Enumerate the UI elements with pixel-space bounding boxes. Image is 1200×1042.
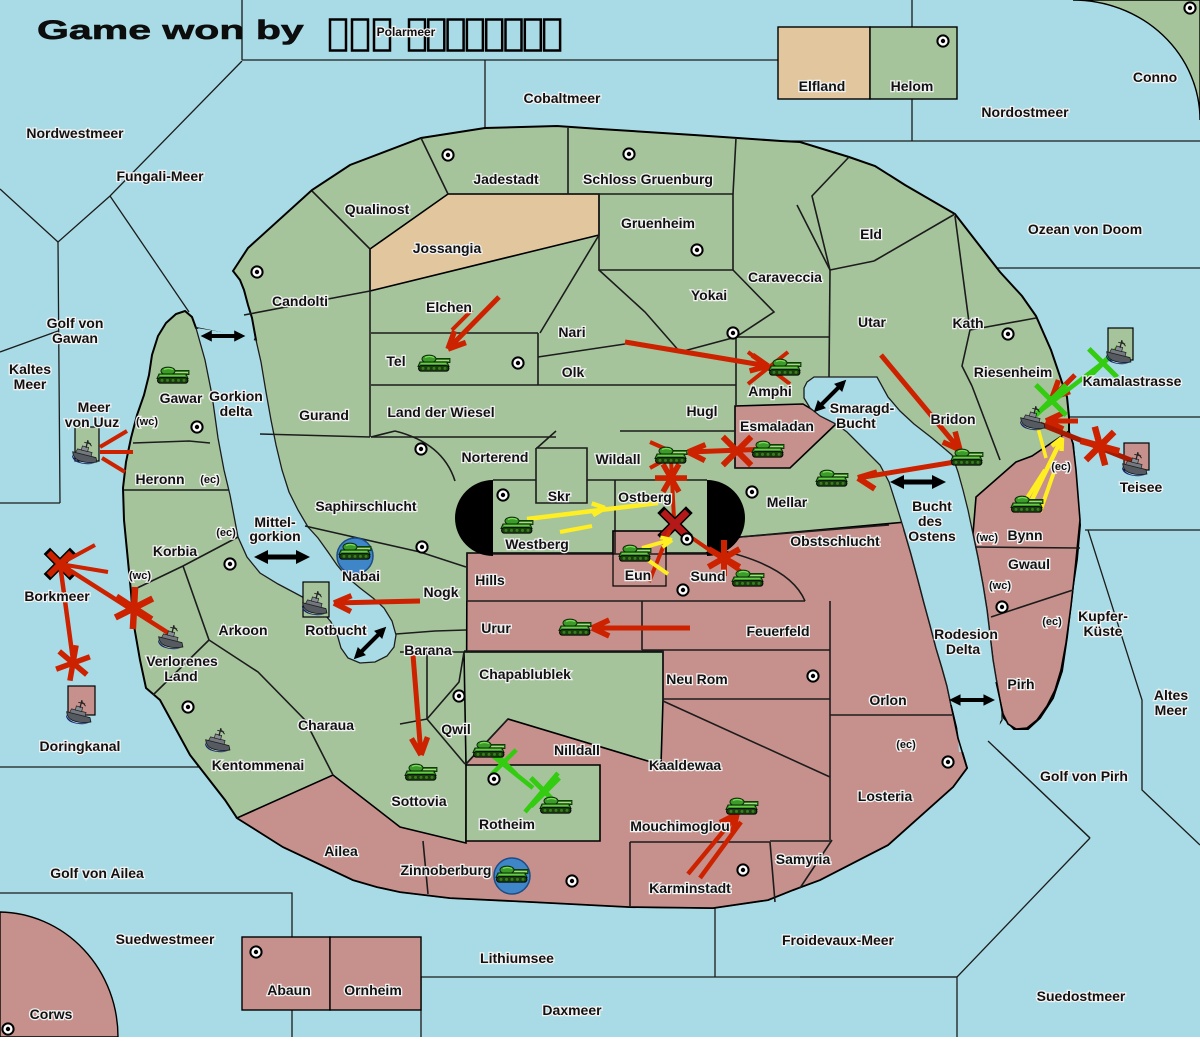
svg-text:Eld: Eld — [860, 226, 882, 242]
svg-text:Feuerfeld: Feuerfeld — [746, 623, 809, 639]
svg-text:Kupfer-: Kupfer- — [1078, 608, 1128, 624]
svg-text:Gruenheim: Gruenheim — [621, 215, 695, 231]
svg-text:Heronn: Heronn — [136, 471, 185, 487]
svg-text:Abaun: Abaun — [267, 982, 311, 998]
svg-text:Barana: Barana — [404, 642, 452, 658]
svg-text:Suedostmeer: Suedostmeer — [1037, 988, 1126, 1004]
svg-text:Rodesion: Rodesion — [934, 626, 998, 642]
svg-text:Nabai: Nabai — [342, 568, 380, 584]
svg-text:Nari: Nari — [558, 324, 585, 340]
svg-text:Orlon: Orlon — [869, 692, 906, 708]
svg-text:Nordwestmeer: Nordwestmeer — [26, 125, 124, 141]
svg-text:Wildall: Wildall — [596, 451, 641, 467]
svg-text:Meer: Meer — [1155, 702, 1188, 718]
svg-text:Borkmeer: Borkmeer — [24, 588, 90, 604]
svg-text:Nogk: Nogk — [424, 584, 459, 600]
svg-text:Helom: Helom — [891, 78, 934, 94]
svg-text:Westberg: Westberg — [505, 536, 569, 552]
svg-text:Yokai: Yokai — [691, 287, 727, 303]
svg-text:Corws: Corws — [30, 1006, 73, 1022]
svg-text:Qwil: Qwil — [441, 721, 471, 737]
svg-text:(wc): (wc) — [989, 580, 1011, 592]
svg-text:Mellar: Mellar — [767, 494, 808, 510]
svg-text:Charaua: Charaua — [298, 717, 354, 733]
svg-text:Jadestadt: Jadestadt — [473, 171, 539, 187]
svg-text:Zinnoberburg: Zinnoberburg — [401, 862, 492, 878]
svg-text:Riesenheim: Riesenheim — [974, 364, 1053, 380]
svg-text:Eun: Eun — [625, 567, 651, 583]
svg-text:Verlorenes: Verlorenes — [146, 653, 218, 669]
svg-text:Candolti: Candolti — [272, 293, 328, 309]
svg-text:Game won by: Game won by — [37, 16, 304, 46]
svg-text:Suedwestmeer: Suedwestmeer — [116, 931, 215, 947]
svg-text:Bynn: Bynn — [1008, 527, 1043, 543]
svg-text:Delta: Delta — [946, 641, 980, 657]
svg-text:Rotheim: Rotheim — [479, 816, 535, 832]
svg-text:Losteria: Losteria — [858, 788, 913, 804]
svg-text:Chapablublek: Chapablublek — [479, 666, 571, 682]
svg-text:Elfland: Elfland — [799, 78, 846, 94]
svg-text:(wc): (wc) — [136, 416, 158, 428]
svg-text:Bucht: Bucht — [836, 415, 876, 431]
svg-text:Kaltes: Kaltes — [9, 361, 51, 377]
svg-text:Norterend: Norterend — [462, 449, 529, 465]
svg-text:Gawan: Gawan — [52, 330, 98, 346]
svg-text:Gwaul: Gwaul — [1008, 556, 1050, 572]
svg-text:Sottovia: Sottovia — [391, 793, 446, 809]
svg-text:Neu Rom: Neu Rom — [666, 671, 727, 687]
svg-text:Elchen: Elchen — [426, 299, 472, 315]
svg-text:Nordostmeer: Nordostmeer — [981, 104, 1069, 120]
svg-text:Bucht: Bucht — [912, 498, 952, 514]
svg-text:Altes: Altes — [1154, 687, 1188, 703]
svg-text:Meer: Meer — [14, 376, 47, 392]
svg-text:von Uuz: von Uuz — [65, 414, 119, 430]
svg-text:Ozean von Doom: Ozean von Doom — [1028, 221, 1142, 237]
svg-text:Urur: Urur — [481, 620, 511, 636]
svg-text:Amphi: Amphi — [748, 383, 792, 399]
svg-text:Gorkion: Gorkion — [209, 388, 263, 404]
svg-text:Polarmeer: Polarmeer — [377, 25, 436, 39]
svg-text:des: des — [918, 513, 942, 529]
svg-text:Kamalastrasse: Kamalastrasse — [1083, 373, 1182, 389]
svg-text:Hills: Hills — [475, 572, 505, 588]
svg-text:Tel: Tel — [386, 353, 405, 369]
svg-text:Golf von: Golf von — [47, 315, 104, 331]
svg-text:Sund: Sund — [691, 568, 726, 584]
svg-text:Caraveccia: Caraveccia — [748, 269, 822, 285]
svg-text:Cobaltmeer: Cobaltmeer — [523, 90, 601, 106]
svg-text:Land der Wiesel: Land der Wiesel — [387, 404, 494, 420]
svg-text:Küste: Küste — [1084, 623, 1123, 639]
svg-text:Teisee: Teisee — [1120, 479, 1163, 495]
svg-text:Golf von Pirh: Golf von Pirh — [1040, 768, 1128, 784]
svg-text:Saphirschlucht: Saphirschlucht — [315, 498, 416, 514]
svg-text:Olk: Olk — [562, 364, 585, 380]
svg-text:Esmaladan: Esmaladan — [740, 418, 814, 434]
svg-text:Smaragd-: Smaragd- — [830, 400, 895, 416]
svg-text:Daxmeer: Daxmeer — [542, 1002, 602, 1018]
svg-text:Obstschlucht: Obstschlucht — [790, 533, 880, 549]
svg-text:Meer: Meer — [78, 399, 111, 415]
svg-text:Karminstadt: Karminstadt — [649, 880, 731, 896]
svg-text:Skr: Skr — [548, 488, 571, 504]
svg-text:Ailea: Ailea — [324, 843, 358, 859]
svg-text:Conno: Conno — [1133, 69, 1177, 85]
svg-text:Lithiumsee: Lithiumsee — [480, 950, 554, 966]
svg-text:Arkoon: Arkoon — [219, 622, 268, 638]
svg-text:Hugl: Hugl — [686, 403, 717, 419]
svg-text:(ec): (ec) — [200, 474, 220, 486]
svg-text:Gurand: Gurand — [299, 407, 349, 423]
svg-text:Land: Land — [164, 668, 197, 684]
svg-text:Ostberg: Ostberg — [618, 489, 672, 505]
svg-text:Kaaldewaa: Kaaldewaa — [649, 757, 722, 773]
svg-text:Korbia: Korbia — [153, 543, 198, 559]
svg-text:Kentommenai: Kentommenai — [212, 757, 305, 773]
svg-text:Pirh: Pirh — [1007, 676, 1034, 692]
svg-text:Rotbucht: Rotbucht — [305, 622, 367, 638]
svg-text:Fungali-Meer: Fungali-Meer — [116, 168, 204, 184]
svg-text:Jossangia: Jossangia — [413, 240, 482, 256]
svg-text:(wc): (wc) — [976, 532, 998, 544]
svg-text:Bridon: Bridon — [930, 411, 975, 427]
svg-text:Mouchimoglou: Mouchimoglou — [630, 818, 730, 834]
svg-text:Nilldall: Nilldall — [554, 742, 600, 758]
svg-text:Doringkanal: Doringkanal — [40, 738, 121, 754]
svg-text:Golf von Ailea: Golf von Ailea — [50, 865, 144, 881]
svg-text:gorkion: gorkion — [249, 528, 300, 544]
svg-text:Kath: Kath — [952, 315, 983, 331]
svg-text:(ec): (ec) — [896, 739, 916, 751]
svg-text:(ec): (ec) — [1042, 616, 1062, 628]
svg-text:delta: delta — [220, 403, 253, 419]
svg-text:Samyria: Samyria — [776, 851, 831, 867]
svg-text:Ostens: Ostens — [908, 528, 956, 544]
svg-text:Froidevaux-Meer: Froidevaux-Meer — [782, 932, 895, 948]
svg-text:Utar: Utar — [858, 314, 887, 330]
svg-text:(ec): (ec) — [1051, 461, 1071, 473]
svg-text:Gawar: Gawar — [160, 390, 203, 406]
svg-text:(ec): (ec) — [216, 527, 236, 539]
svg-text:Schloss Gruenburg: Schloss Gruenburg — [583, 171, 713, 187]
svg-text:Ornheim: Ornheim — [344, 982, 402, 998]
svg-text:Qualinost: Qualinost — [345, 201, 410, 217]
svg-text:(wc): (wc) — [129, 570, 151, 582]
